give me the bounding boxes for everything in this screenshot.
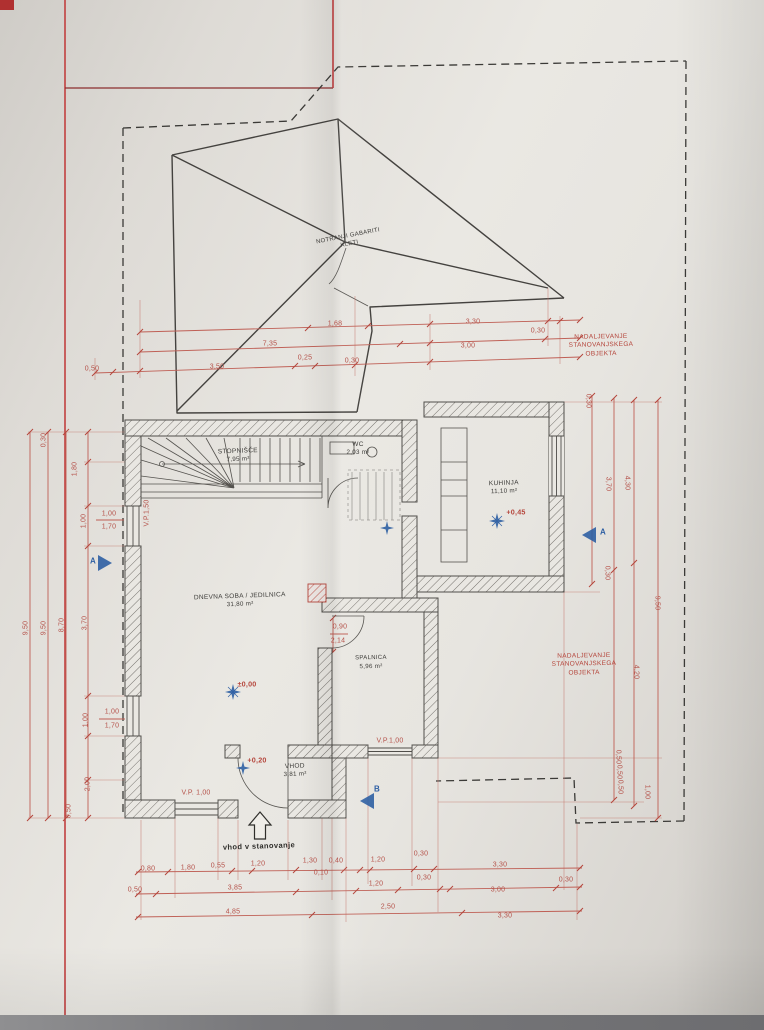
room-name: WC xyxy=(346,441,369,449)
dimension-label: 2,14 xyxy=(331,638,345,645)
dimension-label: 0,30 xyxy=(585,394,592,408)
dimension-label: 9,50 xyxy=(654,596,661,610)
dimension-label: 3,85 xyxy=(228,885,242,892)
room-area: 7,95 m² xyxy=(218,455,258,464)
room-area: 11,10 m² xyxy=(489,488,519,497)
room-label-entry: VHOD 3,81 m² xyxy=(283,762,307,779)
dimension-label: 1,20 xyxy=(371,857,385,864)
dimension-label: 1,68 xyxy=(328,321,342,328)
dimension-label: 0,30 xyxy=(417,875,431,882)
dimension-label: 1,20 xyxy=(369,881,383,888)
continuation-note-top: NADALJEVANJE STANOVANJSKEGA OBJEKTA xyxy=(555,333,647,360)
dimension-label: 0,30 xyxy=(559,877,573,884)
dimension-label: 0,50 xyxy=(617,780,624,794)
dimension-label: 3,70 xyxy=(82,616,89,630)
dimension-label: 1,70 xyxy=(102,524,116,531)
dimension-label: A xyxy=(600,528,606,537)
dimension-label: 0,50 xyxy=(66,804,73,818)
dimension-label: 3,00 xyxy=(461,343,475,350)
dimension-label: 0,30 xyxy=(345,358,359,365)
dimension-label: 3,30 xyxy=(498,913,512,920)
red-corner-mark xyxy=(0,0,14,10)
dimension-label: 3,30 xyxy=(466,319,480,326)
dimension-label: 1,80 xyxy=(181,865,195,872)
dimension-label: 1,00 xyxy=(83,713,90,727)
staircase xyxy=(141,436,322,498)
dimension-label: 1,00 xyxy=(644,785,651,799)
room-label-stairs: STOPNIŠČE 7,95 m² xyxy=(218,447,259,465)
dimension-label: 0,90 xyxy=(333,624,347,631)
dimension-label: 3,70 xyxy=(605,477,612,491)
dimension-label: 1,80 xyxy=(72,462,79,476)
floor-plan-scan: NOTRANJI GABARITI KLETI STOPNIŠČE 7,95 m… xyxy=(0,0,764,1030)
flue-shaft xyxy=(308,584,326,602)
dimension-label: +0,45 xyxy=(506,508,525,517)
dimension-label: 7,35 xyxy=(263,341,277,348)
dimension-label: 0,55 xyxy=(211,863,225,870)
table-edge xyxy=(0,1015,764,1030)
dimension-label: 3,00 xyxy=(491,887,505,894)
dimension-label: +0,20 xyxy=(247,756,266,765)
dimension-label: 0,25 xyxy=(298,355,312,362)
dimension-label: 3,50 xyxy=(210,364,224,371)
dimension-label: 0,30 xyxy=(41,433,48,447)
dimension-label: 9,50 xyxy=(23,621,30,635)
basement-stair-ghost xyxy=(348,470,400,520)
room-area: 2,03 m² xyxy=(346,449,369,457)
dimension-label: 1,00 xyxy=(105,709,119,716)
dimension-label: 1,70 xyxy=(105,723,119,730)
dimension-label: 0,40 xyxy=(329,858,343,865)
dimension-label: 0,50 xyxy=(128,887,142,894)
room-label-bedroom: SPALNICA 5,96 m² xyxy=(355,655,387,671)
dimension-label: 2,00 xyxy=(85,777,92,791)
dimension-label: 1,00 xyxy=(102,511,116,518)
dimension-label: 0,10 xyxy=(314,870,328,877)
section-markers xyxy=(98,527,596,809)
dimension-label: 0,50 xyxy=(616,765,623,779)
dimension-label: 3,30 xyxy=(493,862,507,869)
dimension-label: 4,20 xyxy=(633,665,640,679)
dimension-label: B xyxy=(374,785,380,794)
dimension-label: 0,30 xyxy=(531,328,545,335)
room-label-kitchen: KUHINJA 11,10 m² xyxy=(489,479,519,497)
entrance-arrow-icon xyxy=(249,812,271,839)
dimension-label: 4,30 xyxy=(624,476,631,490)
room-label-living: DNEVNA SOBA / JEDILNICA 31,80 m² xyxy=(194,591,286,611)
room-area: 5,96 m² xyxy=(355,663,387,672)
continuation-note-mid: NADALJEVANJE STANOVANJSKEGA OBJEKTA xyxy=(538,652,630,679)
dimension-label: 8,70 xyxy=(59,618,66,632)
dimension-label: 2,50 xyxy=(381,904,395,911)
dimension-label: V.P.1,00 xyxy=(377,738,404,745)
dimension-label: ±0,00 xyxy=(238,680,257,689)
dimension-label: 0,30 xyxy=(604,566,611,580)
dimension-label: 4,85 xyxy=(226,909,240,916)
dimension-lines-top xyxy=(92,288,583,380)
dimension-label: 1,20 xyxy=(251,861,265,868)
compass-stars xyxy=(225,513,505,775)
dimension-label: A xyxy=(90,557,96,566)
dimension-label: V.P.1,50 xyxy=(144,500,151,527)
dimension-label: 9,50 xyxy=(41,621,48,635)
room-label-wc: WC 2,03 m² xyxy=(346,441,369,458)
dimension-label: 0,30 xyxy=(414,851,428,858)
dimension-label: 1,30 xyxy=(303,858,317,865)
room-area: 3,81 m² xyxy=(283,771,306,780)
dimension-label: 0,50 xyxy=(85,366,99,373)
dimension-label: 0,80 xyxy=(141,866,155,873)
dimension-label: 1,00 xyxy=(81,514,88,528)
dimension-label: V.P. 1,00 xyxy=(181,790,210,797)
dimension-label: 0,50 xyxy=(615,750,622,764)
